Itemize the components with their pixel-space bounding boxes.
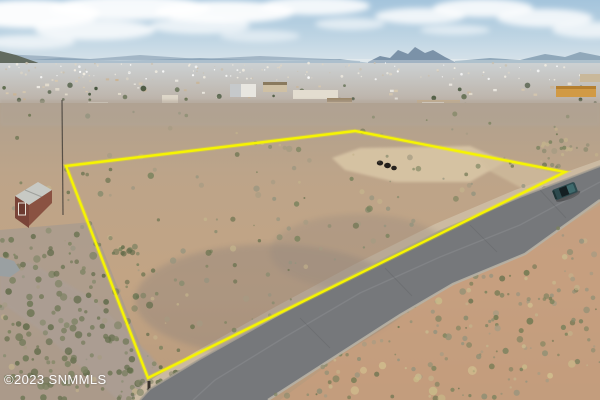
aerial-photo-canvas: [0, 0, 600, 400]
shed-door: [19, 203, 26, 215]
aerial-photo: ©2023 SNMMLS: [0, 0, 600, 400]
building-right-edge: [580, 74, 600, 82]
valley-blend: [0, 100, 600, 126]
building-long-white: [293, 90, 338, 99]
watermark: ©2023 SNMMLS: [4, 372, 107, 387]
metal-building: [230, 84, 256, 97]
orange-building: [556, 86, 596, 97]
house-tan-roof: [263, 82, 287, 92]
